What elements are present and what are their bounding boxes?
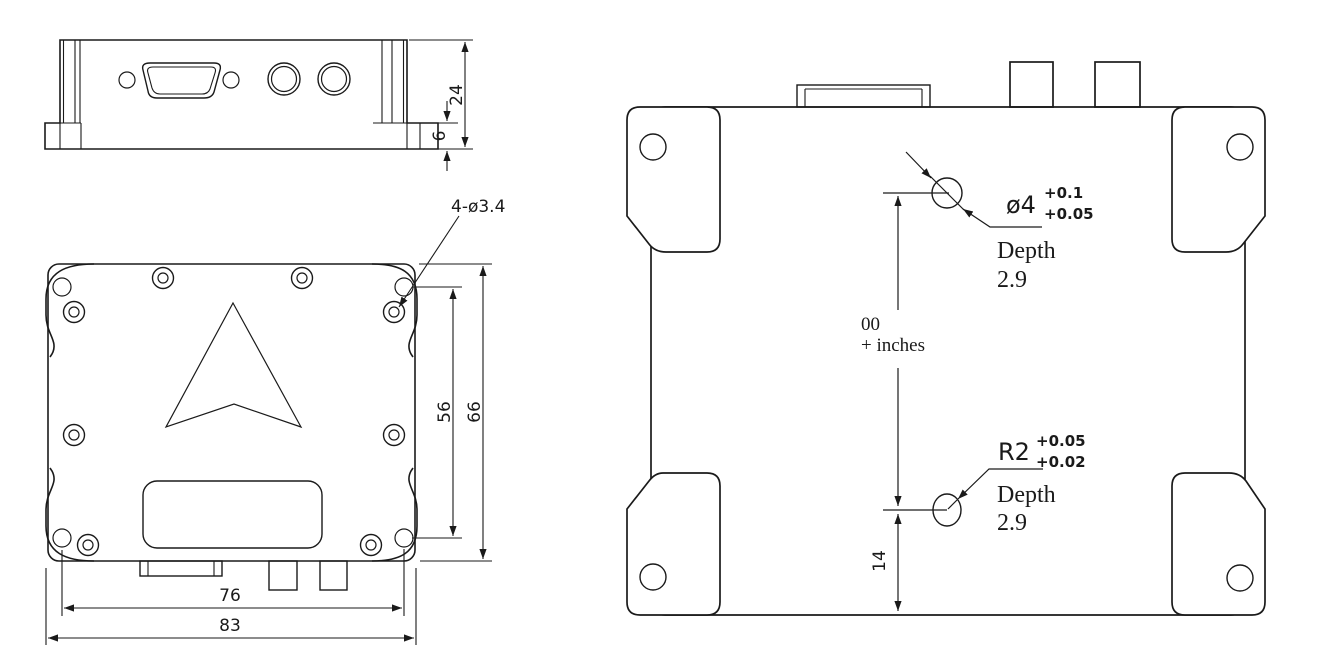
depth-value: 2.9 [997,267,1027,293]
top-edge-footprints [797,62,1140,107]
depth-value: 2.9 [997,510,1027,536]
logo-arrowhead-icon [166,303,301,427]
hole-size-label: ø4 [1006,191,1036,219]
connector-footprint [269,561,297,590]
wall-lines [60,40,420,149]
mounting-tab [1172,473,1265,615]
connector-footprint [320,561,347,590]
screw [64,425,85,446]
dimension-origin: 00 + inches [861,196,925,506]
origin-note-line1: 00 [861,314,880,335]
dim-label-76: 76 [219,586,241,606]
dimension-56: 56 [412,287,462,538]
dsub-connector-inner [148,67,216,94]
dimension-14: 14 [870,514,898,611]
engineering-drawing-canvas: 24 6 [0,0,1320,660]
slot-hole-group: R2 +0.05 +0.02 Depth 2.9 [883,432,1086,536]
circular-connector-inner [272,67,297,92]
circular-connector-inner [322,67,347,92]
callout-label: 4-ø3.4 [451,197,505,217]
corner-ear [372,468,417,561]
circular-connector-icon [268,63,300,95]
corner-ear [46,468,94,561]
dim-label-6: 6 [430,131,450,142]
screw [64,302,85,323]
cover-screws [64,268,405,556]
dimension-flange-6: 6 [430,101,450,171]
dsub-connector-icon [143,63,221,98]
hole-radius-line [948,500,957,509]
depth-label: Depth [997,482,1056,508]
label-recess [143,481,322,548]
connector-footprint [1010,62,1053,107]
tolerance-lower: +0.05 [1044,205,1094,223]
screw [292,268,313,289]
dimension-76: 76 [62,549,404,616]
screw [78,535,99,556]
alignment-hole-group: ø4 +0.1 +0.05 Depth 2.9 [883,152,1094,293]
depth-label: Depth [997,238,1056,264]
dim-label-14: 14 [870,550,890,572]
mounting-tab [1172,107,1265,252]
dsub-footprint [797,85,930,107]
origin-note-line2: + inches [861,335,925,356]
screw [361,535,382,556]
dim-label-66: 66 [465,401,485,423]
mounting-hole [53,529,71,547]
mounting-hole [53,278,71,296]
circular-connector-icon [318,63,350,95]
screw [153,268,174,289]
plan-view: 4-ø3.4 56 66 76 83 [46,197,505,645]
dimension-83: 83 [46,568,416,645]
tolerance-upper: +0.05 [1036,432,1086,450]
drawing-svg: 24 6 [0,0,1320,660]
dim-label-56: 56 [435,401,455,423]
mounting-hole [395,278,413,296]
dim-label-24: 24 [447,84,467,106]
enclosure-bottom-outline [651,107,1245,615]
bottom-connector-footprints [140,561,347,590]
dsub-footprint [140,561,222,576]
tolerance-upper: +0.1 [1044,184,1083,202]
enclosure-top-outline [48,264,415,561]
dimension-66: 66 [419,264,492,561]
dsub-screw-hole [119,72,135,88]
mounting-tab [627,473,720,615]
tolerance-lower: +0.02 [1036,453,1086,471]
mounting-tab [627,107,720,252]
dim-label-83: 83 [219,616,241,636]
bottom-view: ø4 +0.1 +0.05 Depth 2.9 00 + inches R2 +… [627,62,1265,615]
dsub-screw-hole [223,72,239,88]
screw [384,302,405,323]
corner-ear [46,264,94,357]
connector-footprint [1095,62,1140,107]
screw [384,425,405,446]
hole-size-label: R2 [998,438,1030,466]
corner-ear [372,264,417,357]
enclosure-outline [45,40,438,149]
front-view: 24 6 [45,40,473,171]
mounting-hole [395,529,413,547]
